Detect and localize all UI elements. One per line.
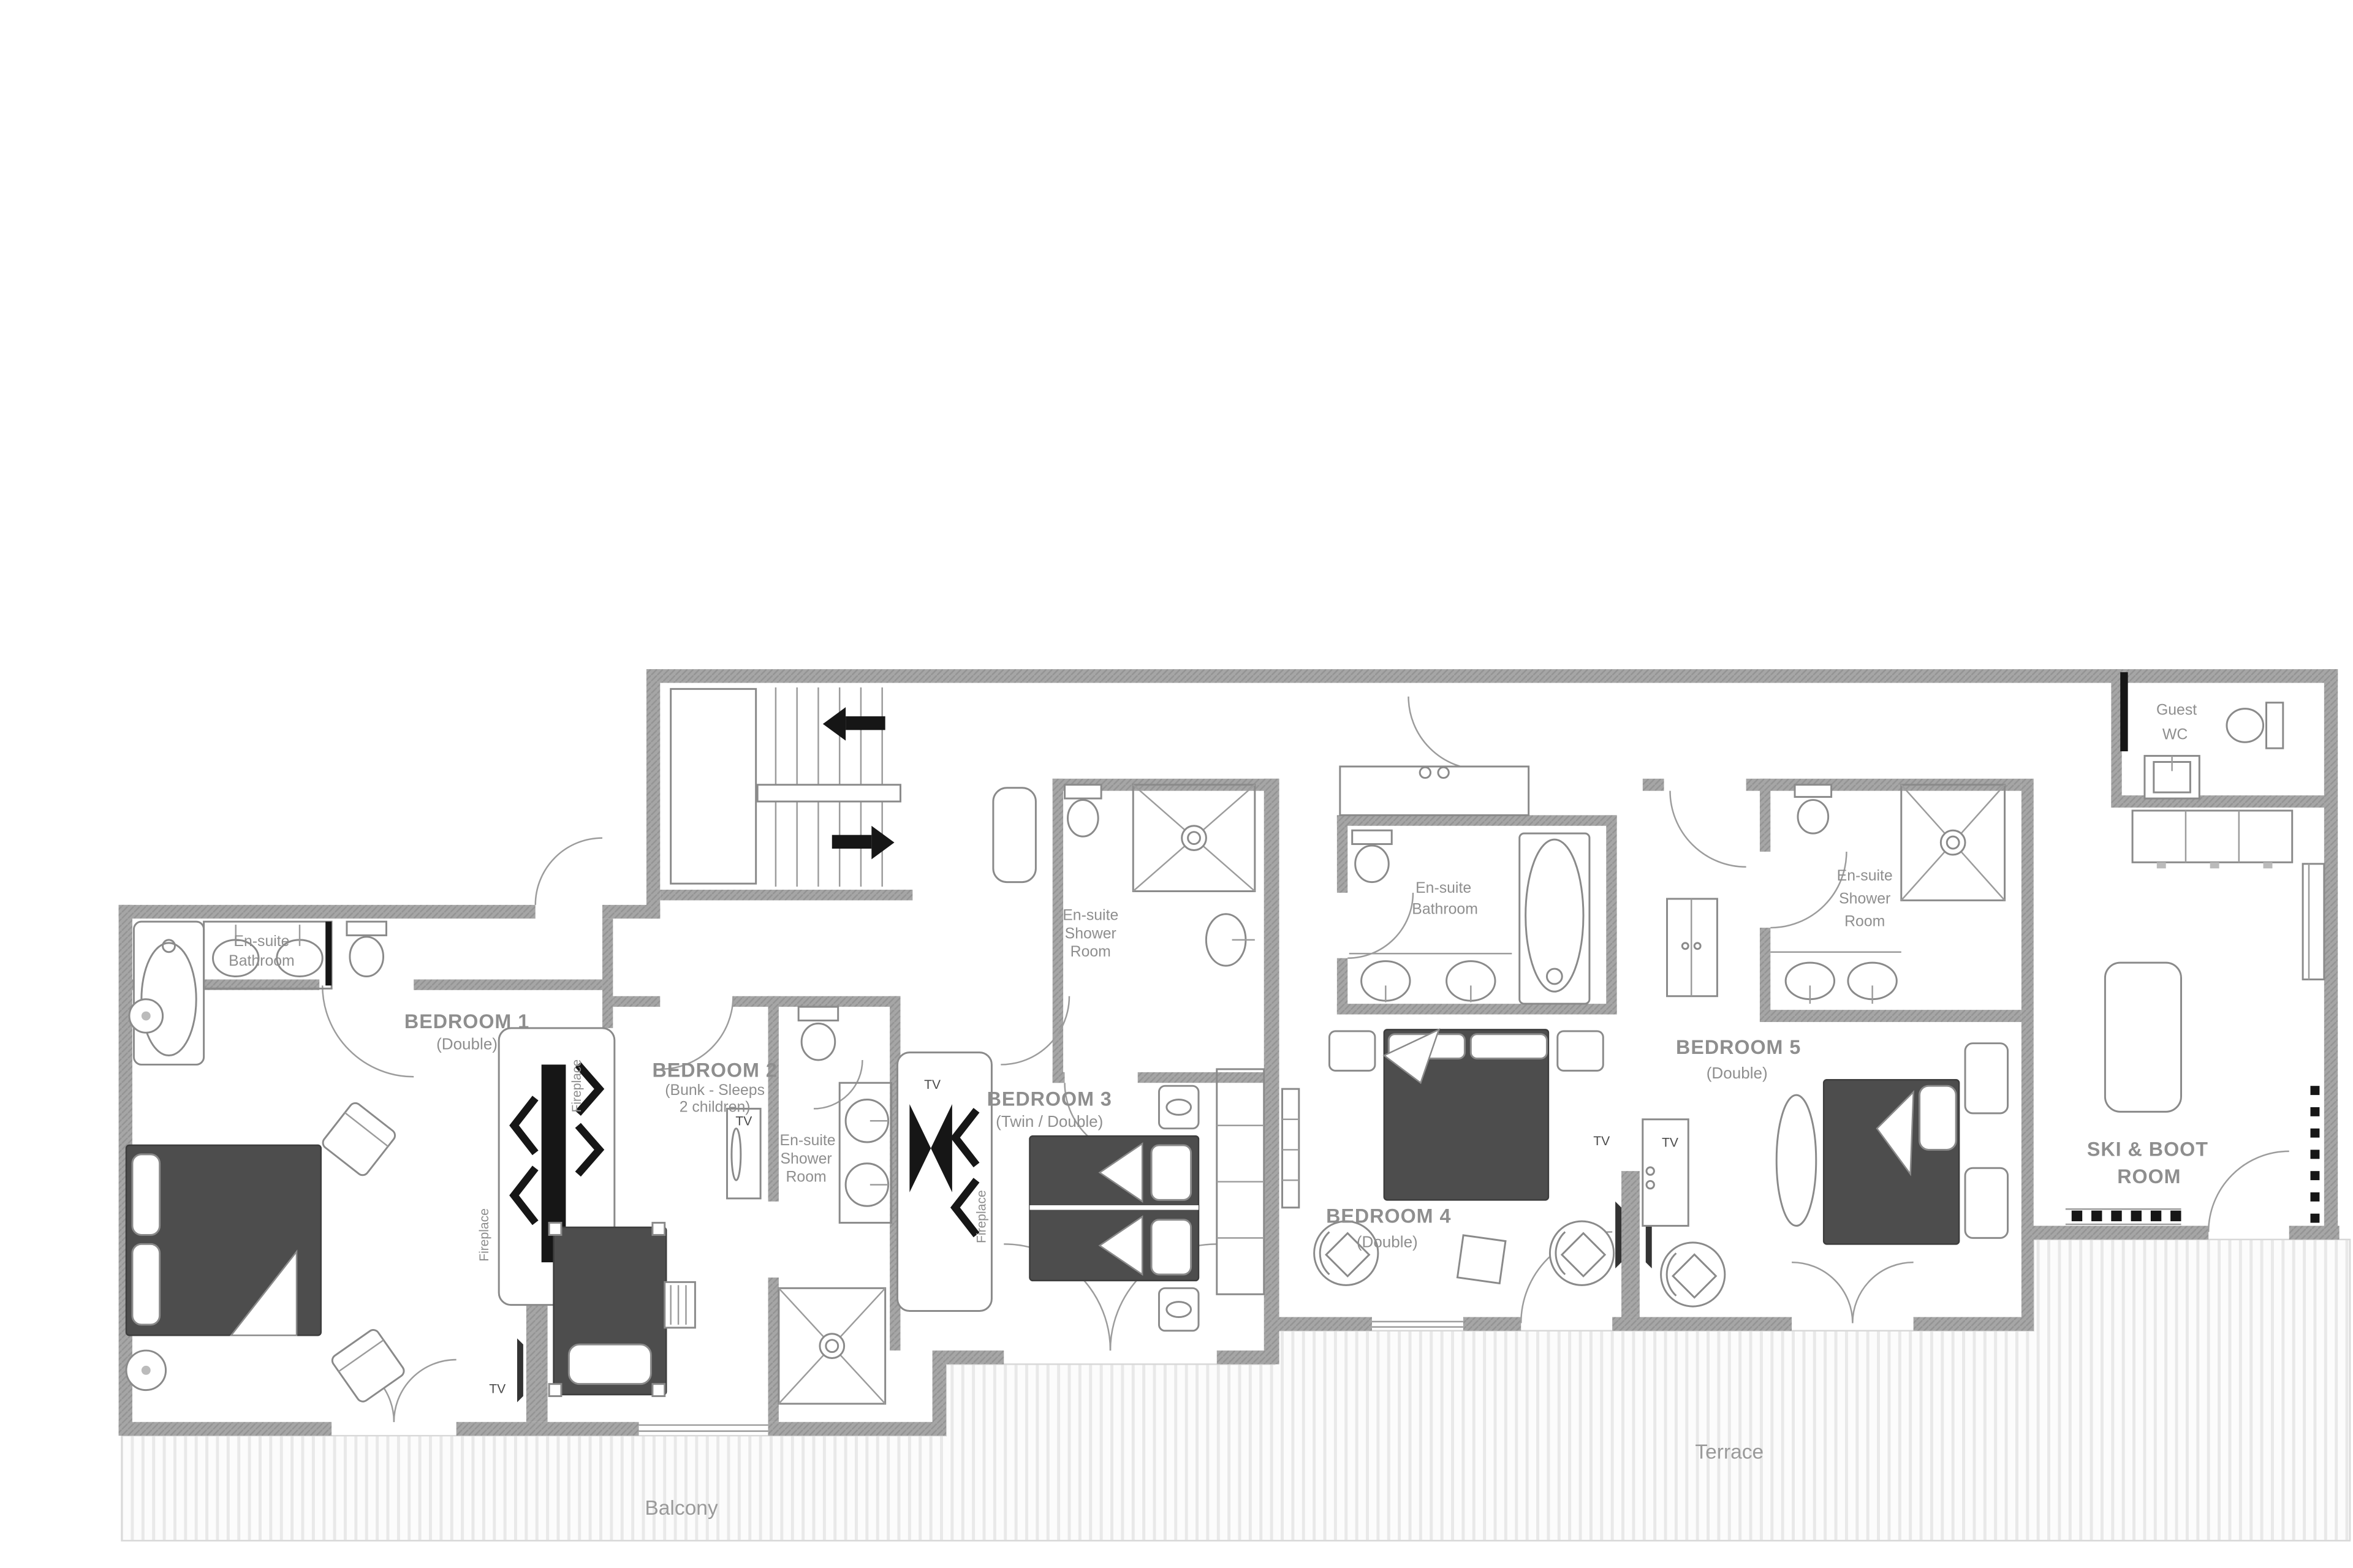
ensuite5-label-line3: Room — [1844, 914, 1885, 930]
stair-up-arrow-shaft — [846, 716, 885, 730]
cabinet-foot — [2210, 862, 2219, 868]
bedroom3-subtitle: (Twin / Double) — [996, 1112, 1103, 1131]
wall-segment — [119, 1422, 332, 1436]
door-arc — [814, 1060, 862, 1108]
wall-segment — [1463, 1317, 1521, 1330]
outdoor-deck: Balcony Terrace — [122, 1240, 2350, 1540]
pillow — [132, 1244, 160, 1325]
cabinet-foot — [2264, 862, 2273, 868]
terrace-label: Terrace — [1695, 1441, 1764, 1463]
closet-icon — [1340, 767, 1529, 815]
boot-warmer-knob — [2091, 1211, 2102, 1221]
bedroom-1: En-suite Bathroom TV BEDROOM 1 (Double) — [126, 922, 529, 1404]
ensuite2-label-line1: En-suite — [780, 1132, 836, 1149]
wall-segment — [613, 996, 660, 1007]
ensuite2-label-line2: Shower — [781, 1151, 832, 1167]
cabinet-foot — [2157, 862, 2166, 868]
radiator-icon — [1283, 1089, 1299, 1208]
ski-boot-label-line2: ROOM — [2117, 1165, 2181, 1187]
wall-segment — [660, 890, 912, 900]
fireplace-label: Fireplace — [477, 1208, 491, 1262]
bathtub-tap — [1547, 969, 1562, 984]
ensuite1-label-line1: En-suite — [233, 933, 289, 950]
toilet-cistern — [347, 922, 387, 935]
boot-warmer-knob — [2151, 1211, 2161, 1221]
toilet-icon — [1798, 800, 1828, 834]
pillow — [569, 1344, 651, 1384]
tv-label: TV — [1593, 1134, 1610, 1148]
boot-warmer-knob — [2310, 1149, 2319, 1159]
door-leaf — [325, 922, 332, 985]
bunk-post — [653, 1223, 665, 1235]
wall-segment — [1279, 1317, 1372, 1330]
toilet-icon — [350, 937, 384, 977]
wall-segment — [2111, 669, 2121, 808]
wall-segment — [1337, 1004, 1617, 1014]
wall-segment — [414, 979, 602, 990]
wall-segment — [1612, 1317, 1792, 1330]
toilet-cistern — [1065, 785, 1102, 798]
guest-wc-label-line1: Guest — [2156, 702, 2197, 719]
ensuite-shower-2: En-suite Shower Room — [779, 1007, 892, 1404]
door-arc — [536, 838, 602, 905]
wall-segment — [119, 905, 536, 918]
stair-rail — [757, 785, 900, 801]
shower-drain — [820, 1334, 844, 1358]
wall-segment — [2021, 779, 2034, 1331]
bench-icon — [2105, 963, 2181, 1112]
bedroom4-subtitle: (Double) — [1357, 1232, 1418, 1251]
toilet-icon — [2227, 709, 2264, 743]
toilet-cistern — [2267, 703, 2283, 748]
wall-segment — [1760, 928, 1770, 1022]
wall-segment — [1606, 815, 1616, 1014]
lamp-dot — [142, 1366, 151, 1375]
bedroom5-label: BEDROOM 5 — [1676, 1036, 1801, 1058]
lamp-dot — [142, 1012, 151, 1021]
armchair-icon — [330, 1328, 406, 1404]
bedroom4-label: BEDROOM 4 — [1326, 1205, 1451, 1227]
fireplace-label: Fireplace — [974, 1190, 988, 1243]
door-arc — [1852, 1262, 1913, 1323]
ensuite-shower-5: En-suite Shower Room — [1770, 785, 2004, 1004]
wall-segment — [1643, 779, 1664, 791]
fireplace-divider-2: TV Fireplace — [898, 1053, 992, 1311]
boot-warmer-knob — [2310, 1192, 2319, 1202]
toilet-cistern — [1352, 830, 1392, 844]
wall-segment — [1621, 1171, 1640, 1317]
door-leaf — [2120, 672, 2128, 751]
pillow — [1471, 1034, 1547, 1059]
tv-screen-icon — [1615, 1202, 1621, 1268]
wall-segment — [1264, 779, 1279, 1365]
wall-segment — [2021, 1226, 2208, 1240]
wall-segment — [2324, 669, 2338, 1240]
door-arc — [2208, 1151, 2289, 1232]
bedroom-5: BEDROOM 5 (Double) — [1667, 899, 2008, 1244]
tv-label: TV — [1662, 1135, 1678, 1149]
balcony-label: Balcony — [645, 1497, 718, 1520]
ensuite5-label-line2: Shower — [1839, 890, 1890, 907]
bedroom-3: BEDROOM 3 (Twin / Double) — [987, 1069, 1264, 1331]
wall-segment — [1914, 1317, 2034, 1330]
wall-segment — [602, 905, 660, 918]
door-arc — [1670, 791, 1746, 867]
armchair-icon — [320, 1100, 397, 1177]
tall-cupboard — [2303, 864, 2324, 980]
ensuite4-label-line1: En-suite — [1415, 880, 1471, 896]
toilet-cistern — [798, 1007, 838, 1020]
boot-warmer-knob — [2111, 1211, 2121, 1221]
tv-label: TV — [735, 1115, 752, 1129]
tv-label: TV — [489, 1382, 506, 1396]
deck-area — [122, 1240, 2350, 1540]
bench-icon — [993, 788, 1036, 882]
stair-up-arrow-icon — [823, 707, 846, 741]
ensuite4-label-line2: Bathroom — [1412, 901, 1478, 918]
bedside-table — [1965, 1043, 2008, 1113]
wall-segment — [457, 1422, 639, 1436]
ensuite1-label-line2: Bathroom — [229, 953, 295, 969]
staircase — [671, 687, 901, 887]
wall-segment — [946, 1350, 1004, 1364]
wall-segment — [1760, 779, 1770, 852]
wall-segment — [1337, 815, 1617, 825]
bedroom3-label: BEDROOM 3 — [987, 1088, 1112, 1110]
toilet-cistern — [1795, 785, 1832, 797]
boot-warmer-knob — [2310, 1107, 2319, 1116]
ensuite3-label-line2: Shower — [1065, 925, 1116, 942]
stair-landing — [671, 689, 756, 884]
bedroom2-label: BEDROOM 2 — [653, 1059, 778, 1081]
door-arc — [1409, 697, 1482, 770]
bedroom2-subtitle2: 2 children) — [680, 1099, 751, 1115]
bedroom-4: BEDROOM 4 (Double) — [1314, 1029, 1614, 1285]
pillow — [132, 1154, 160, 1235]
guest-wc-label-line2: WC — [2162, 726, 2188, 743]
tv-screen-icon — [517, 1338, 523, 1402]
wall-segment — [1138, 1072, 1275, 1083]
ensuite2-label-line3: Room — [786, 1169, 826, 1186]
shower-drain — [1941, 830, 1965, 855]
wall-segment — [768, 996, 779, 1202]
tv-partition: TV TV — [1593, 1119, 1725, 1306]
ski-boot-room: SKI & BOOT ROOM — [2066, 864, 2324, 1224]
bedroom1-subtitle: (Double) — [436, 1035, 498, 1053]
bathtub-icon — [1520, 833, 1590, 1004]
wall-segment — [646, 669, 2338, 683]
wall-segment — [1337, 815, 1347, 893]
door-arc — [1770, 852, 1846, 928]
pillow — [1151, 1145, 1191, 1200]
toilet-icon — [1068, 800, 1099, 837]
ski-boot-label-line1: SKI & BOOT — [2087, 1138, 2208, 1160]
boot-warmer-knob — [2131, 1211, 2142, 1221]
bedside-table — [1965, 1168, 2008, 1238]
bedside-table — [1159, 1288, 1199, 1330]
door-arc — [1347, 893, 1413, 958]
bedside-table — [1558, 1031, 1603, 1071]
door-arc — [322, 985, 414, 1077]
cabinet-row — [2132, 811, 2292, 862]
wall-segment — [526, 1305, 548, 1422]
ensuite5-label-line1: En-suite — [1837, 868, 1893, 884]
ensuite3-label-line3: Room — [1070, 944, 1111, 960]
boot-warmer-knob — [2072, 1211, 2082, 1221]
shower-drain — [1182, 826, 1207, 850]
bunk-post — [549, 1384, 561, 1396]
wall-segment — [602, 918, 613, 1028]
pillow — [1920, 1086, 1957, 1149]
floor-plan: Balcony Terrace — [0, 0, 2353, 1568]
wall-segment — [1053, 779, 1063, 1083]
tv-label: TV — [924, 1078, 941, 1092]
bunk-post — [549, 1223, 561, 1235]
bunk-ladder-icon — [665, 1282, 695, 1327]
bedroom2-subtitle1: (Bunk - Sleeps — [665, 1082, 765, 1099]
boot-warmer-knob — [2310, 1171, 2319, 1180]
toilet-icon — [801, 1023, 835, 1060]
floor-plan-svg: Balcony Terrace — [0, 0, 2353, 1568]
boot-warmer-knob — [2310, 1129, 2319, 1138]
side-table — [1457, 1235, 1505, 1283]
wall-segment — [646, 669, 660, 918]
wall-segment — [733, 996, 900, 1007]
bunk-post — [653, 1384, 665, 1396]
door-arc — [660, 996, 733, 1069]
fireplace-label: Fireplace — [570, 1059, 584, 1113]
bedroom5-subtitle: (Double) — [1707, 1064, 1768, 1082]
wall-segment — [1760, 1010, 2021, 1022]
boot-warmer-knob — [2170, 1211, 2181, 1221]
door-arc — [1792, 1262, 1852, 1323]
boot-warmer-knob — [2310, 1214, 2319, 1223]
pillow — [1151, 1220, 1191, 1274]
oval-rug — [1776, 1095, 1816, 1225]
stair-down-arrow-shaft — [832, 835, 872, 849]
wall-segment — [768, 1278, 779, 1422]
ensuite3-label-line1: En-suite — [1063, 907, 1118, 924]
toilet-icon — [1355, 846, 1389, 882]
bedside-table — [1329, 1031, 1374, 1071]
boot-warmer-knob — [2310, 1086, 2319, 1095]
ensuite-bathroom-4: En-suite Bathroom — [1340, 767, 1590, 1004]
wall-segment — [933, 1350, 946, 1436]
wall-segment — [768, 1422, 946, 1436]
bedside-table — [1159, 1086, 1199, 1128]
guest-wc: Guest WC — [2120, 672, 2292, 868]
